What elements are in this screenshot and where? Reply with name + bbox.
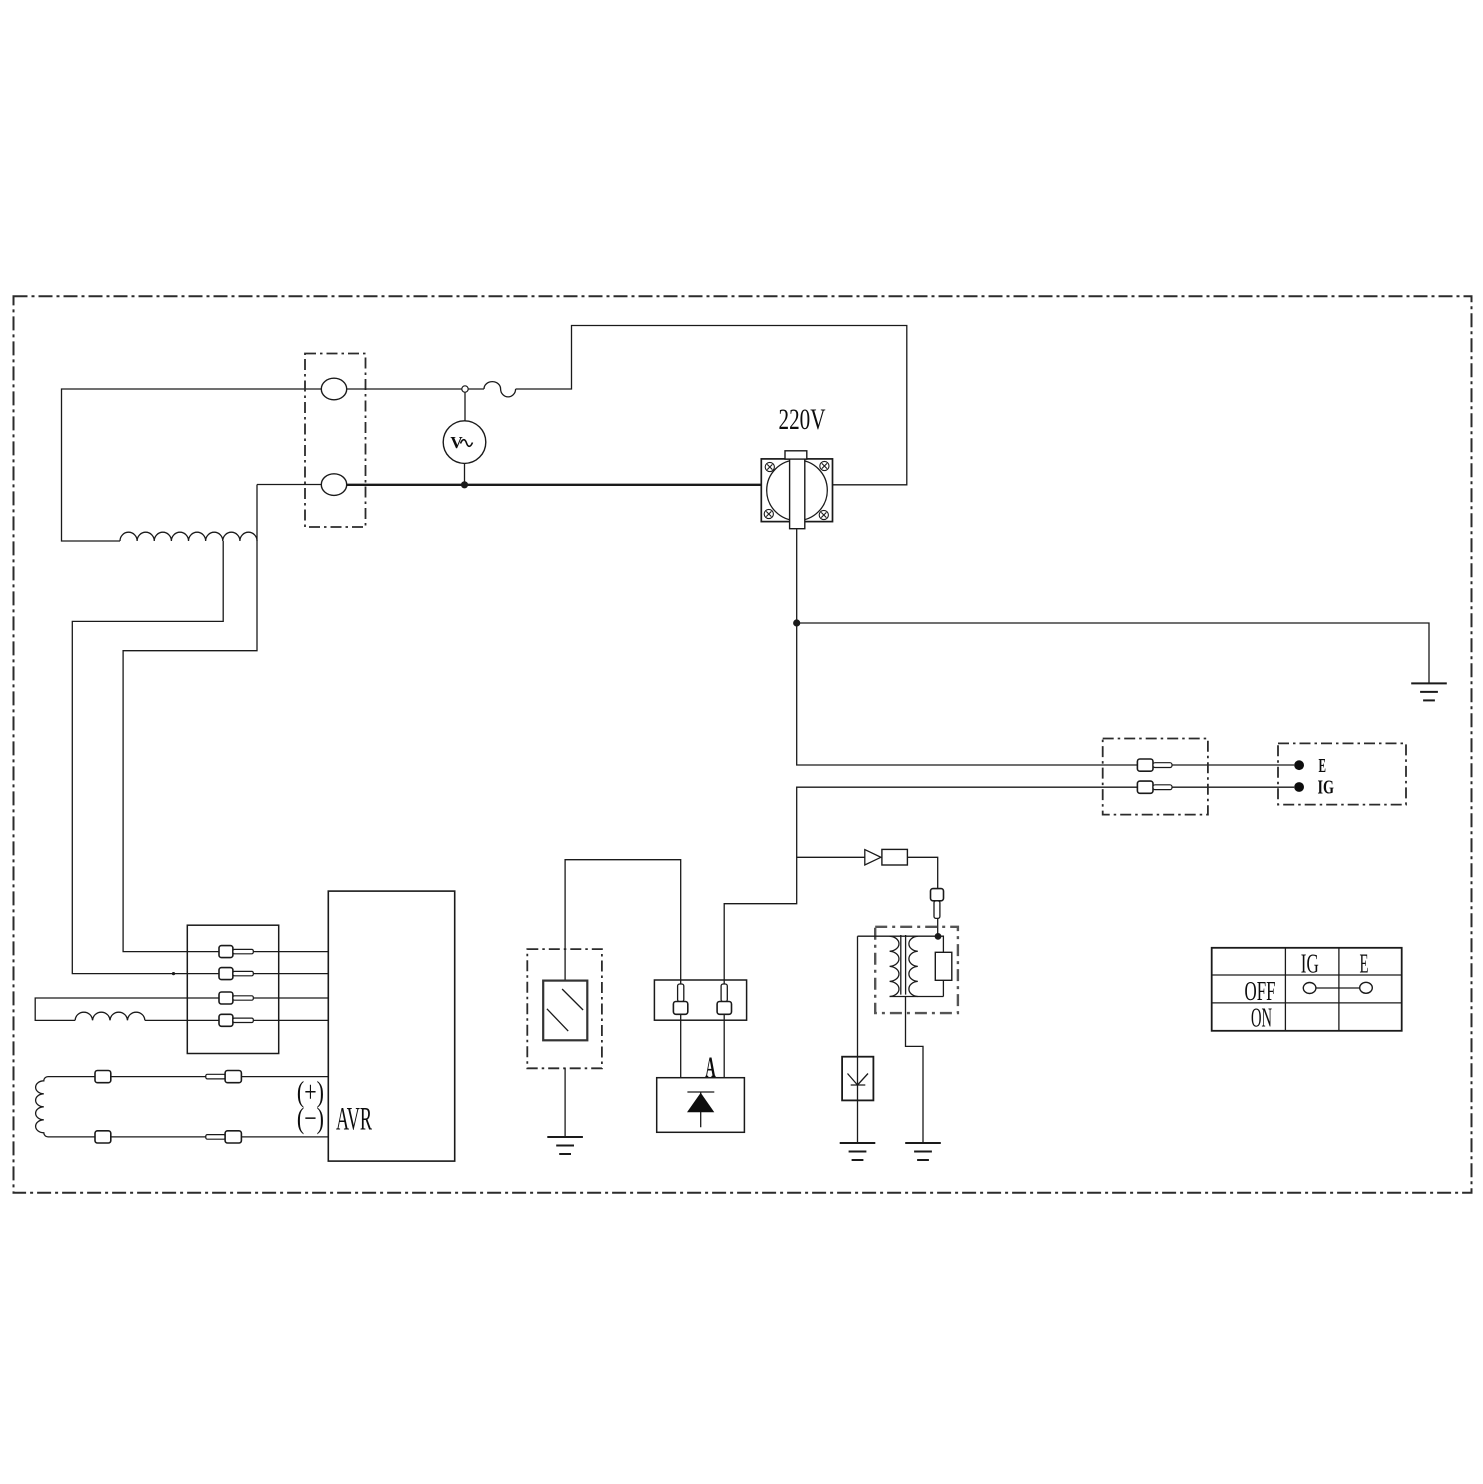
svg-text:IG: IG: [1318, 777, 1335, 799]
svg-text:(−): (−): [297, 1102, 324, 1135]
svg-text:ON: ON: [1251, 1003, 1272, 1033]
svg-text:OFF: OFF: [1245, 976, 1276, 1006]
svg-text:E: E: [1319, 755, 1327, 777]
svg-text:E: E: [1360, 949, 1369, 979]
svg-text:220V: 220V: [779, 403, 826, 436]
svg-text:IG: IG: [1301, 949, 1319, 979]
svg-text:AVR: AVR: [336, 1102, 372, 1138]
